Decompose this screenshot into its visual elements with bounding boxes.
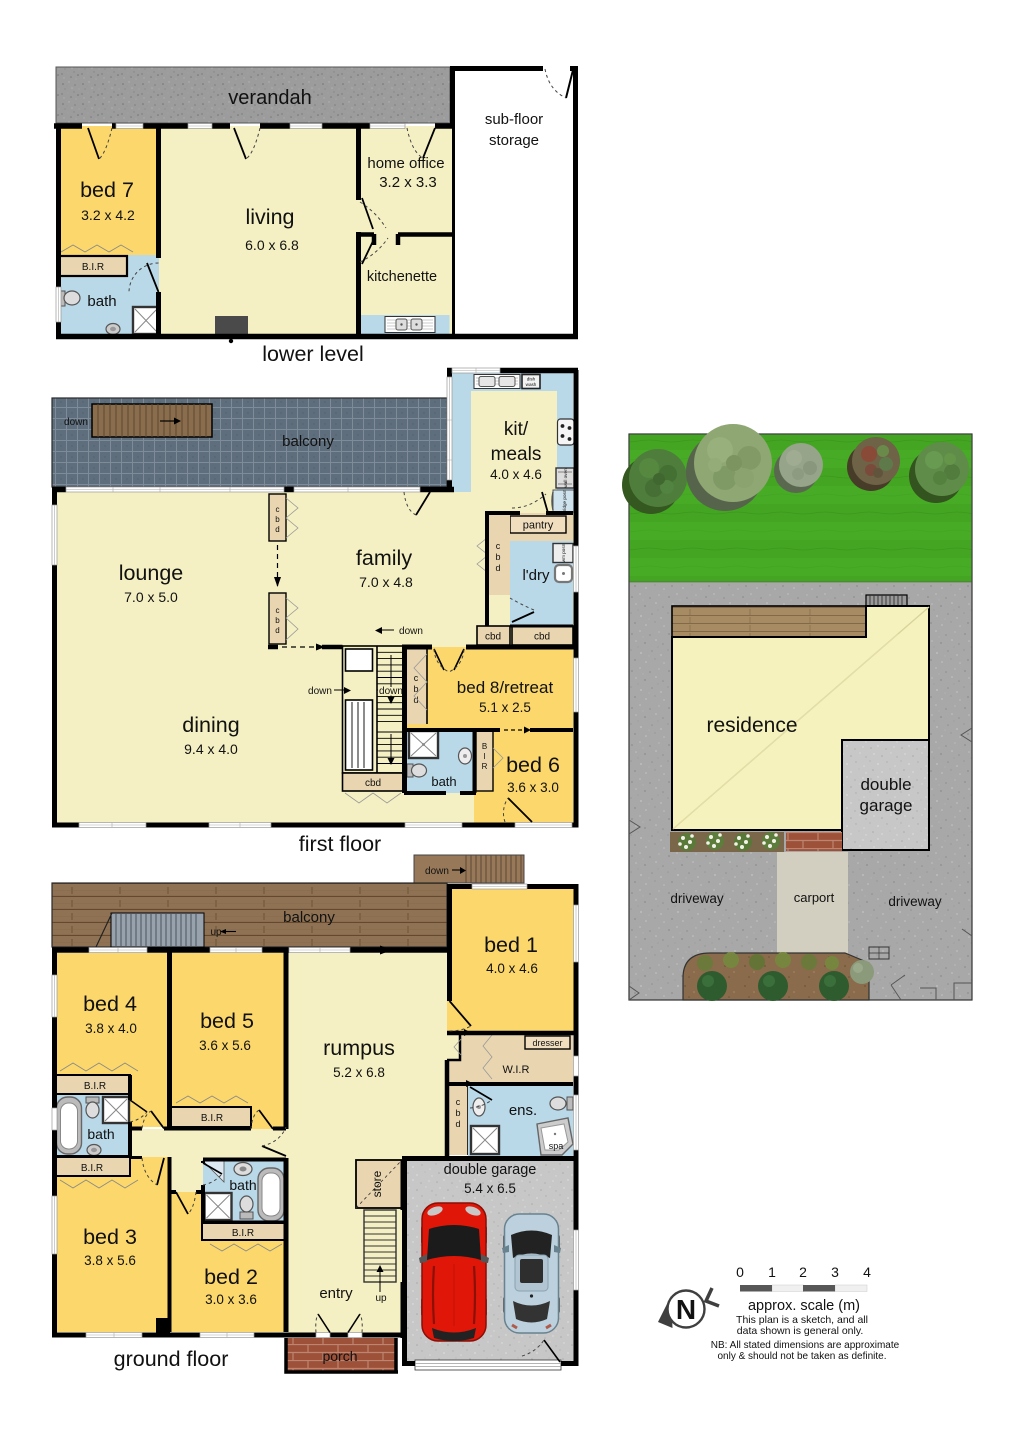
svg-text:c: c: [414, 673, 419, 683]
svg-text:b: b: [275, 616, 280, 625]
svg-text:W.I.R: W.I.R: [503, 1064, 530, 1076]
svg-text:R: R: [482, 762, 488, 771]
svg-text:bed 5: bed 5: [200, 1009, 254, 1033]
svg-text:meals: meals: [491, 444, 542, 465]
svg-text:down: down: [399, 626, 423, 637]
svg-text:I: I: [483, 752, 485, 761]
svg-text:6.0 x 6.8: 6.0 x 6.8: [245, 237, 299, 253]
svg-text:ens.: ens.: [509, 1102, 537, 1119]
svg-text:B.I.R: B.I.R: [82, 262, 104, 273]
svg-text:bath: bath: [229, 1177, 256, 1193]
svg-text:rumpus: rumpus: [323, 1036, 395, 1060]
svg-text:storage: storage: [489, 132, 539, 149]
svg-text:carport: carport: [794, 890, 835, 905]
svg-text:kitchenette: kitchenette: [367, 269, 437, 285]
svg-text:B.I.R: B.I.R: [232, 1228, 254, 1239]
svg-text:first floor: first floor: [299, 832, 381, 856]
svg-text:N: N: [676, 1294, 696, 1325]
svg-text:porch: porch: [322, 1348, 357, 1364]
svg-text:bed 2: bed 2: [204, 1265, 258, 1289]
svg-text:bath: bath: [87, 1126, 114, 1142]
svg-text:4.0 x 4.6: 4.0 x 4.6: [490, 467, 542, 482]
svg-text:c: c: [456, 1097, 461, 1107]
svg-text:1: 1: [768, 1264, 776, 1280]
svg-text:down: down: [64, 417, 88, 428]
svg-text:c: c: [496, 541, 501, 551]
svg-text:wash: wash: [526, 382, 537, 387]
svg-text:down: down: [425, 866, 449, 877]
svg-text:bed 3: bed 3: [83, 1225, 137, 1249]
svg-text:7.0 x 4.8: 7.0 x 4.8: [359, 574, 413, 590]
svg-text:3: 3: [831, 1264, 839, 1280]
svg-text:bath: bath: [431, 774, 456, 789]
svg-text:d: d: [455, 1119, 460, 1129]
svg-text:7.0 x 5.0: 7.0 x 5.0: [124, 589, 178, 605]
svg-text:verandah: verandah: [228, 87, 311, 109]
svg-text:cbd: cbd: [534, 632, 550, 643]
svg-text:living: living: [246, 205, 295, 229]
svg-text:wm posn: wm posn: [561, 543, 566, 562]
svg-text:home office: home office: [367, 155, 444, 172]
svg-text:dish: dish: [527, 377, 536, 382]
svg-text:b: b: [495, 552, 500, 562]
svg-text:d: d: [275, 525, 279, 534]
svg-text:cbd: cbd: [365, 778, 381, 789]
svg-text:B.I.R: B.I.R: [84, 1081, 106, 1092]
svg-text:3.0 x 3.6: 3.0 x 3.6: [205, 1292, 257, 1307]
svg-text:sub-floor: sub-floor: [485, 111, 543, 128]
svg-text:3.8 x 5.6: 3.8 x 5.6: [84, 1253, 136, 1268]
svg-text:kit/: kit/: [504, 419, 529, 440]
svg-text:3.6 x 3.0: 3.6 x 3.0: [507, 780, 559, 795]
svg-text:balcony: balcony: [283, 909, 335, 926]
svg-text:3.2 x 4.2: 3.2 x 4.2: [81, 207, 135, 223]
svg-text:only & should not be taken as: only & should not be taken as definite.: [717, 1351, 886, 1362]
svg-text:NB: All stated dimensions are: NB: All stated dimensions are approximat…: [711, 1340, 900, 1351]
svg-text:3.8 x 4.0: 3.8 x 4.0: [85, 1021, 137, 1036]
svg-text:bath: bath: [87, 293, 116, 310]
svg-text:lower level: lower level: [262, 342, 364, 366]
svg-text:l'dry: l'dry: [522, 567, 550, 584]
svg-text:garage: garage: [860, 796, 913, 815]
svg-text:fridge posn: fridge posn: [562, 489, 567, 512]
svg-text:ground floor: ground floor: [114, 1347, 229, 1371]
svg-text:dresser: dresser: [532, 1038, 562, 1048]
svg-text:d: d: [275, 626, 279, 635]
svg-text:5.2 x 6.8: 5.2 x 6.8: [333, 1065, 385, 1080]
svg-text:c: c: [276, 606, 280, 615]
svg-text:driveway: driveway: [670, 891, 724, 906]
svg-text:down: down: [308, 686, 332, 697]
svg-text:up: up: [375, 1293, 387, 1304]
svg-text:lounge: lounge: [119, 561, 184, 585]
svg-text:2: 2: [799, 1264, 807, 1280]
svg-text:3.6 x 5.6: 3.6 x 5.6: [199, 1038, 251, 1053]
svg-text:bed 1: bed 1: [484, 933, 538, 957]
svg-text:4: 4: [863, 1264, 871, 1280]
svg-text:d: d: [495, 563, 500, 573]
svg-text:double: double: [860, 775, 911, 794]
svg-text:bed 4: bed 4: [83, 992, 137, 1016]
svg-text:entry: entry: [319, 1285, 353, 1302]
svg-text:0: 0: [736, 1264, 744, 1280]
svg-text:approx. scale (m): approx. scale (m): [748, 1298, 860, 1314]
svg-text:up: up: [210, 927, 222, 938]
svg-text:driveway: driveway: [888, 894, 942, 909]
svg-text:bed 7: bed 7: [80, 178, 134, 202]
svg-text:c: c: [276, 505, 280, 514]
svg-text:family: family: [356, 546, 412, 570]
svg-text:9.4 x 4.0: 9.4 x 4.0: [184, 741, 238, 757]
svg-text:data shown is general only.: data shown is general only.: [737, 1325, 863, 1337]
svg-text:residence: residence: [706, 714, 797, 737]
svg-text:cbd: cbd: [485, 632, 501, 643]
svg-text:B: B: [482, 742, 487, 751]
svg-text:bed 8/retreat: bed 8/retreat: [457, 678, 554, 697]
svg-text:b: b: [275, 515, 280, 524]
svg-text:4.0 x 4.6: 4.0 x 4.6: [486, 961, 538, 976]
svg-text:spa: spa: [549, 1141, 564, 1151]
svg-text:store: store: [370, 1170, 384, 1197]
svg-text:bed 6: bed 6: [506, 753, 560, 777]
svg-text:5.4 x 6.5: 5.4 x 6.5: [464, 1181, 516, 1196]
svg-text:3.2 x 3.3: 3.2 x 3.3: [379, 174, 437, 191]
svg-text:pantry: pantry: [523, 520, 554, 532]
svg-text:down: down: [379, 686, 403, 697]
svg-text:B.I.R: B.I.R: [81, 1163, 103, 1174]
svg-text:b: b: [455, 1108, 460, 1118]
svg-text:double garage: double garage: [444, 1162, 537, 1178]
svg-text:balcony: balcony: [282, 433, 334, 450]
svg-text:B.I.R: B.I.R: [201, 1113, 223, 1124]
svg-text:wall oven: wall oven: [563, 468, 568, 488]
svg-text:dining: dining: [182, 713, 239, 737]
svg-text:5.1 x 2.5: 5.1 x 2.5: [479, 700, 531, 715]
